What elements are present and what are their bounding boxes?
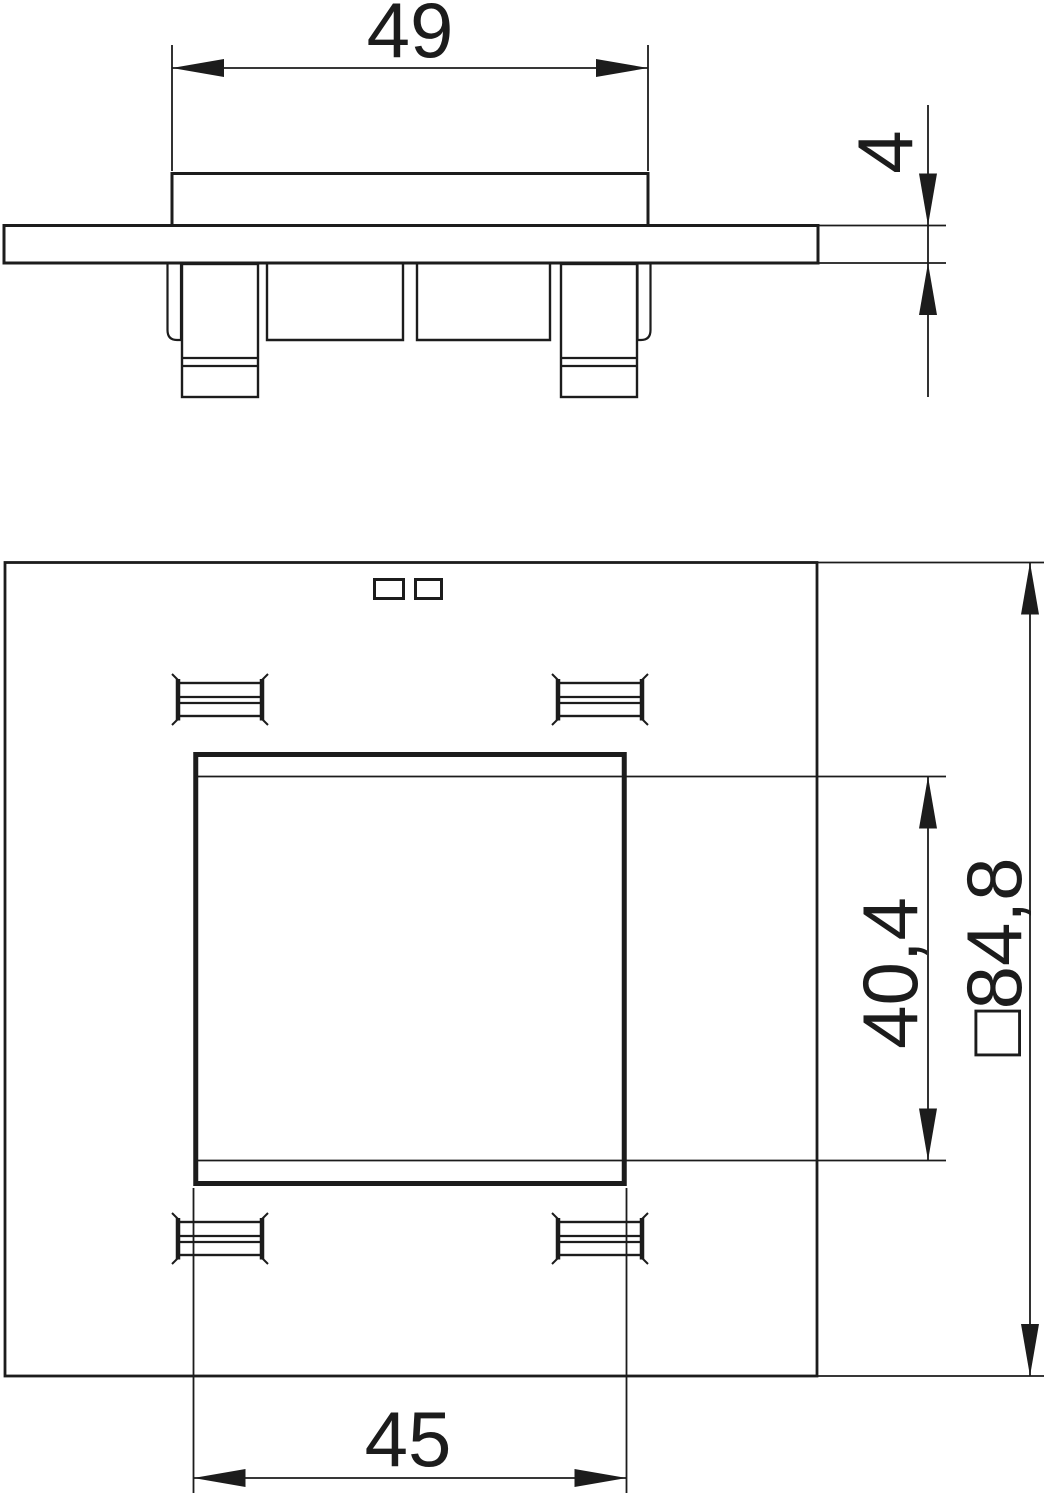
side-cover-block xyxy=(172,174,648,227)
side-right-latch-leg xyxy=(561,264,637,397)
plan-outer-plate xyxy=(5,563,817,1377)
arrowhead-up xyxy=(1021,563,1039,615)
dimension-cutout-inner-height: 40,4 xyxy=(846,777,937,1161)
side-left-hook-strip xyxy=(168,264,182,340)
side-centre-support-right xyxy=(417,264,550,340)
clip-slot-bottom-left xyxy=(172,1213,268,1264)
arrowhead-down xyxy=(919,174,937,226)
plan-latch-window-left xyxy=(375,580,404,599)
clip-slot-top-right xyxy=(552,674,648,725)
side-flange-plate xyxy=(4,226,818,264)
dimension-flange-thickness: 4 xyxy=(819,105,946,397)
plan-module-cutout xyxy=(196,755,625,1184)
technical-drawing-page: 49 4 45 xyxy=(0,0,1050,1500)
side-right-latch-barb xyxy=(561,358,638,366)
side-right-hook-strip xyxy=(638,264,651,340)
arrowhead-up xyxy=(919,777,937,829)
arrowhead-left xyxy=(172,59,224,77)
plan-view: 45 40,4 □84,8 xyxy=(5,563,1044,1494)
arrowhead-left xyxy=(194,1469,246,1487)
arrowhead-down xyxy=(1021,1324,1039,1376)
dimension-label-49: 49 xyxy=(367,0,454,74)
clip-slot-top-left xyxy=(172,674,268,725)
arrowhead-up xyxy=(919,263,937,315)
dimension-label-84-8: □84,8 xyxy=(950,858,1038,1057)
plan-latch-window-right xyxy=(416,580,442,599)
dimension-cover-width: 49 xyxy=(172,0,648,171)
side-centre-support-left xyxy=(267,264,403,340)
side-view: 49 4 xyxy=(4,0,946,397)
clip-slot-bottom-right xyxy=(552,1213,648,1264)
dimension-extension-lines xyxy=(819,226,946,264)
arrowhead-down xyxy=(919,1109,937,1161)
side-left-latch-barb xyxy=(181,358,258,366)
arrowhead-right xyxy=(575,1469,627,1487)
dimension-label-4: 4 xyxy=(841,130,929,173)
dimension-label-40-4: 40,4 xyxy=(846,897,934,1049)
side-left-latch-leg xyxy=(182,264,258,397)
dimension-label-45: 45 xyxy=(365,1395,452,1483)
dimension-cutout-width: 45 xyxy=(194,1188,627,1493)
arrowhead-right xyxy=(596,59,648,77)
drawing-canvas: 49 4 45 xyxy=(0,0,1050,1500)
